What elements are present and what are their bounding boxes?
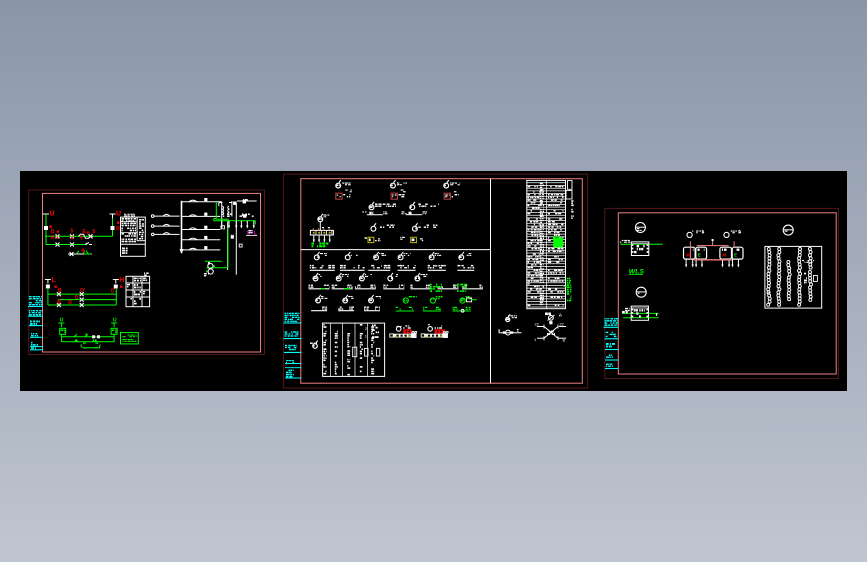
svg-text:R: R [51,235,55,241]
svg-text:D: D [111,288,115,294]
svg-text:D: D [75,295,79,301]
svg-text:22: 22 [535,323,539,327]
svg-text:22: 22 [560,323,564,327]
svg-text:U: U [116,211,121,218]
svg-text:5: 5 [93,229,96,235]
svg-text:4: 4 [71,235,74,241]
svg-text:B: B [57,300,61,306]
svg-text:■: ■ [117,220,120,226]
svg-text:M: M [686,253,690,258]
svg-text:D: D [68,300,72,306]
svg-text:E: E [698,252,701,257]
svg-text:5: 5 [80,236,83,242]
svg-text:M: M [723,253,727,258]
svg-text:5: 5 [71,229,74,235]
svg-text:O': O' [80,288,85,294]
svg-text:■: ■ [57,229,60,234]
svg-text:■: ■ [54,284,57,290]
svg-text:B: B [58,288,62,294]
svg-text:U: U [50,211,55,218]
svg-text:L: L [57,235,60,241]
svg-text:H: H [119,277,124,284]
svg-text:E: E [734,252,737,257]
svg-text:9: 9 [82,249,85,255]
svg-text:R: R [116,226,120,232]
svg-text:B: B [563,338,566,343]
svg-text:■: ■ [120,284,123,290]
svg-text:L: L [52,277,57,284]
